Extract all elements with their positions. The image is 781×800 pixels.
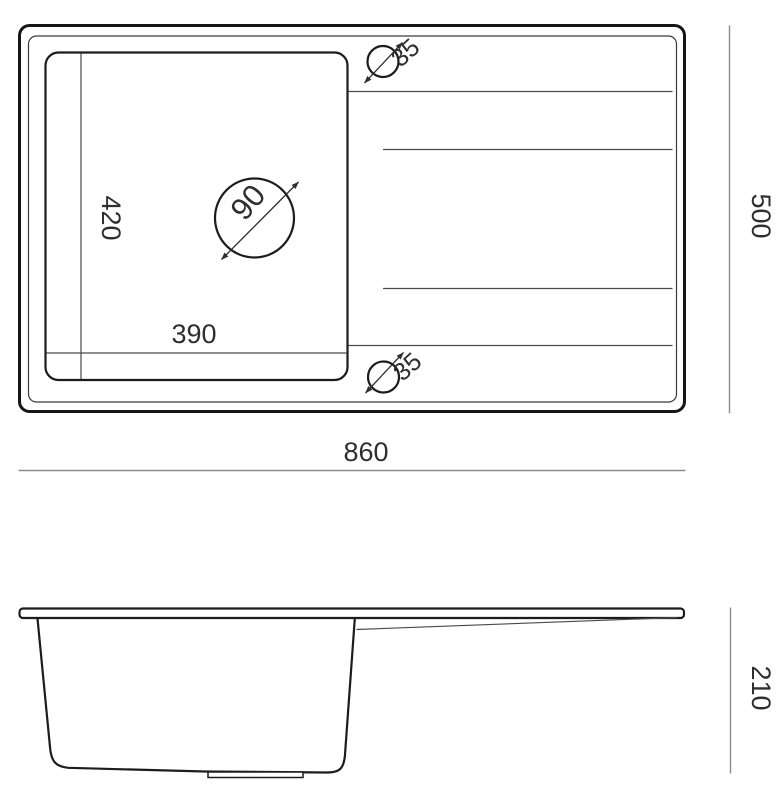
drainboard-underside-line [357, 618, 678, 630]
top-view: 90 35 35 420 390 500 860 [19, 26, 777, 471]
overall-width-label: 860 [343, 437, 388, 467]
bowl-depth-label: 420 [96, 195, 126, 240]
sink-technical-drawing: 90 35 35 420 390 500 860 [0, 0, 781, 800]
faucet-hole-bottom-label: 35 [388, 347, 427, 386]
side-view: 210 [20, 608, 777, 778]
drawing-canvas: 90 35 35 420 390 500 860 [0, 0, 781, 800]
overall-depth-label: 500 [746, 193, 776, 238]
faucet-hole-top-label: 35 [386, 33, 425, 72]
drain-outlet-flange [208, 772, 303, 778]
bowl-width-label: 390 [171, 319, 216, 349]
side-height-label: 210 [746, 665, 776, 710]
rim-profile [20, 609, 685, 619]
bowl-profile [38, 619, 355, 773]
